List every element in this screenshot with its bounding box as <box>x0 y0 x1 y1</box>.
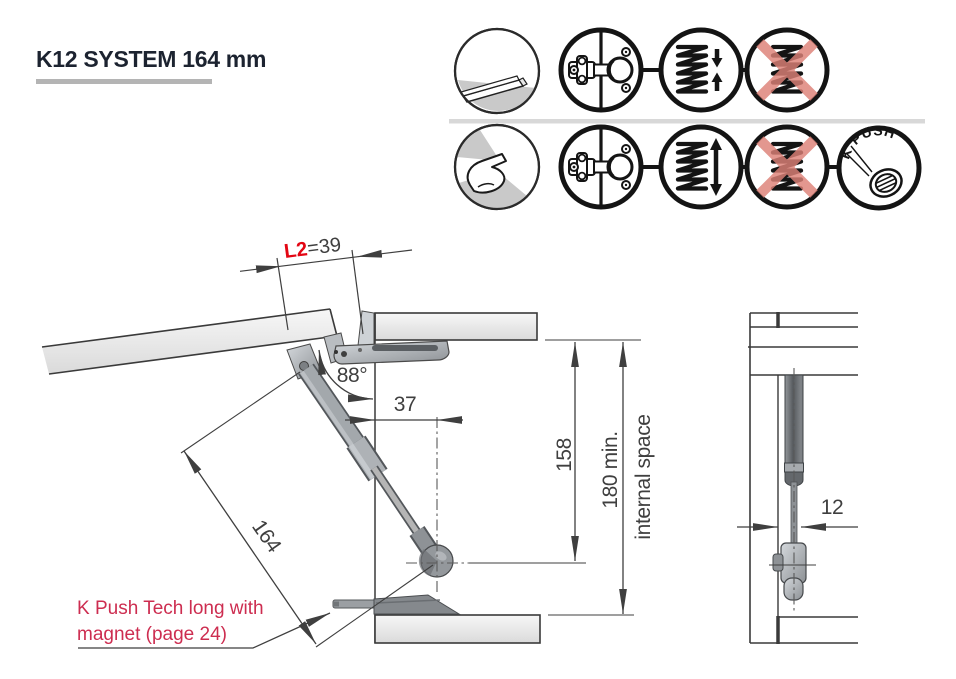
dim-37-value: 37 <box>394 393 417 416</box>
cabinet-bottom-shelf <box>375 615 540 643</box>
cabinet-top-panel <box>375 313 537 340</box>
icon-rows-divider <box>449 119 925 124</box>
dim-37: 37 <box>345 393 463 420</box>
dim-angle-value: 88° <box>337 364 368 387</box>
hinge-arm <box>334 341 449 364</box>
icon-press-to-open <box>455 125 539 209</box>
gas-spring <box>287 344 453 577</box>
centerlines <box>406 417 469 593</box>
icon-spring-crossed-row2 <box>747 127 827 207</box>
dim-l2-label: L2 <box>283 238 309 263</box>
note-leader-line <box>78 613 330 648</box>
dim-12-value: 12 <box>821 496 844 519</box>
k-push-device <box>333 595 459 614</box>
dim-l2-value: =39 <box>306 234 342 260</box>
technical-drawing-canvas: K`PUSH <box>0 0 956 679</box>
icon-panel-profile <box>455 29 539 113</box>
dim-12: 12 <box>737 496 858 527</box>
icon-spring-extension <box>661 127 741 207</box>
icon-k-push: K`PUSH <box>837 122 919 208</box>
k-push-rod <box>333 600 378 608</box>
dim-158-value: 158 <box>553 438 576 472</box>
side-view-drawing: 12 <box>737 312 858 644</box>
dim-180-caption: internal space <box>632 414 655 539</box>
dim-180-value: 180 min. <box>599 431 622 508</box>
header-icons: K`PUSH <box>449 29 925 209</box>
dim-l2-text: L2=39 <box>283 234 343 263</box>
ball-socket <box>419 545 453 577</box>
icon-spring-compression <box>661 30 741 110</box>
icon-spring-crossed-row1 <box>747 30 827 110</box>
page: K12 SYSTEM 164 mm K Push Tech long with … <box>0 0 956 679</box>
icon-hinge-row2 <box>561 127 641 207</box>
icon-hinge-row1 <box>561 30 641 110</box>
main-section-drawing: L2=39 88° 37 158 <box>42 234 655 648</box>
dim-180: 180 min. internal space <box>548 342 655 615</box>
